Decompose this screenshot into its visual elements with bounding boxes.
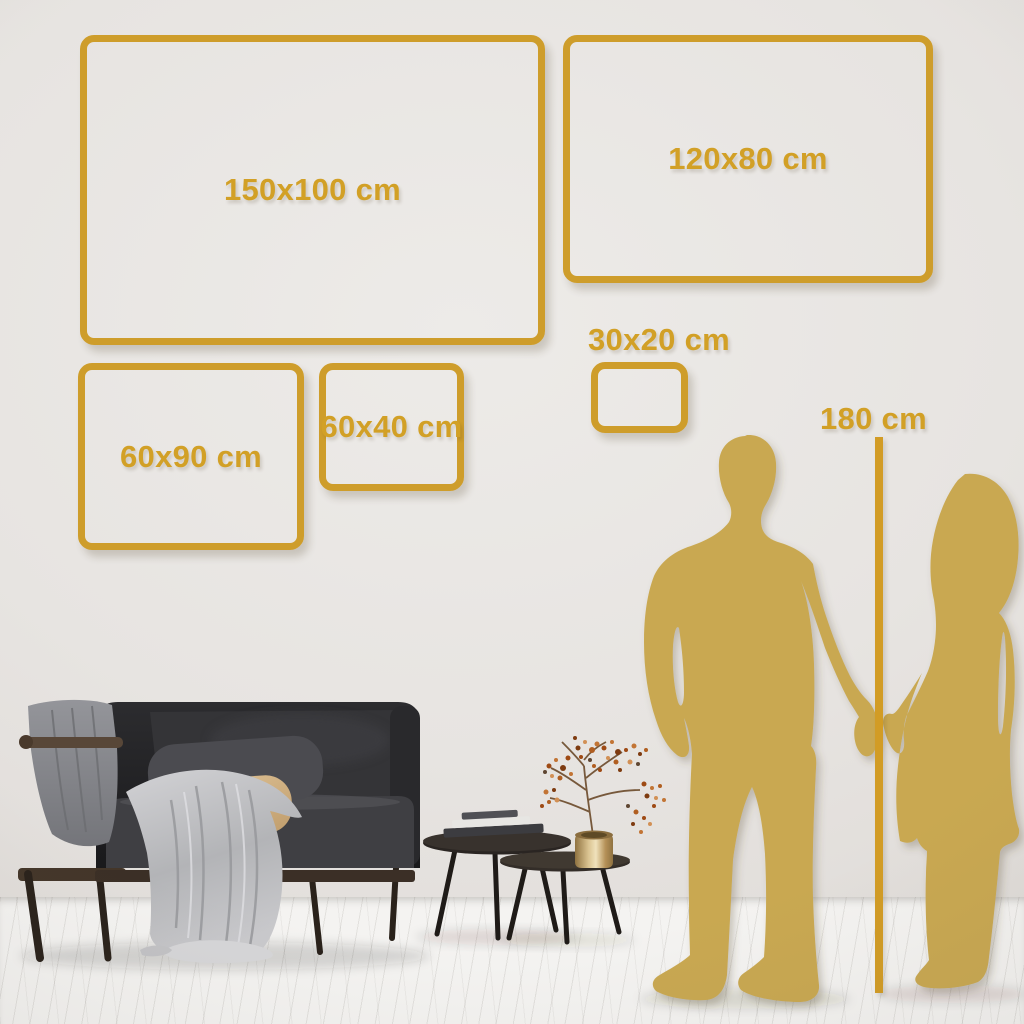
man-silhouette bbox=[644, 435, 878, 1002]
height-measure-line bbox=[875, 437, 883, 993]
couple-silhouettes bbox=[0, 0, 1024, 1024]
size-guide-scene: 150x100 cm 120x80 cm 60x90 cm 60x40 cm 3… bbox=[0, 0, 1024, 1024]
woman-silhouette bbox=[883, 474, 1019, 989]
